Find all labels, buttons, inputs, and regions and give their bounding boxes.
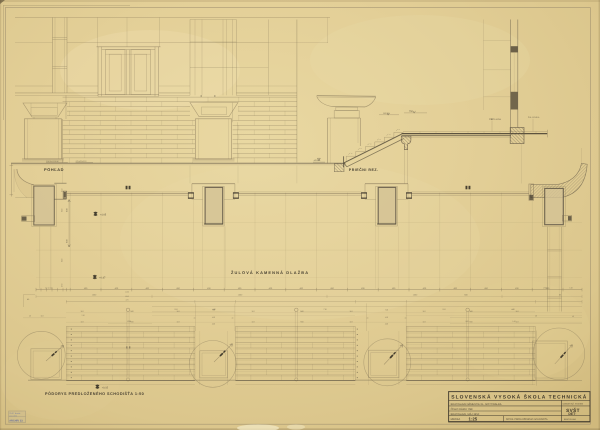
svg-text:960: 960 [469, 310, 472, 313]
svg-text:110: 110 [349, 310, 352, 313]
svg-text:110: 110 [176, 310, 179, 313]
svg-text:1045: 1045 [125, 295, 129, 298]
svg-text:ODBOR INŽ. STAVIEB: ODBOR INŽ. STAVIEB [563, 403, 584, 406]
svg-text:40: 40 [193, 317, 195, 320]
svg-text:+0.47: +0.47 [99, 277, 106, 280]
svg-text:118: 118 [80, 320, 83, 323]
svg-text:60 10 110: 60 10 110 [45, 287, 52, 290]
svg-text:BRATISLAVA, MÁJ 1950: BRATISLAVA, MÁJ 1950 [451, 412, 480, 416]
svg-text:960: 960 [130, 310, 133, 313]
svg-text:BRATISLAVA NÁMESTIE KL. GOTTWA: BRATISLAVA NÁMESTIE KL. GOTTWALDA [451, 402, 502, 406]
svg-text:440: 440 [385, 322, 388, 325]
svg-text:ŽUL.DOSKA: ŽUL.DOSKA [528, 116, 540, 119]
svg-text:110: 110 [40, 315, 43, 318]
svg-text:118: 118 [515, 320, 518, 323]
svg-text:470: 470 [126, 299, 129, 302]
svg-text:440: 440 [212, 322, 215, 325]
svg-text:PÔDORYS PREDLOŽENÉHO SCHODIŠ: PÔDORYS PREDLOŽENÉHO SCHODIŠŤA 1:50 [45, 391, 144, 396]
svg-text:40: 40 [231, 317, 233, 320]
svg-text:MIERKA: MIERKA [451, 418, 461, 421]
svg-text:+0.15: +0.15 [102, 386, 109, 389]
svg-text:140: 140 [569, 287, 572, 290]
svg-text:710: 710 [385, 309, 388, 312]
svg-text:560: 560 [465, 320, 468, 323]
svg-text:118: 118 [251, 320, 254, 323]
svg-text:118: 118 [176, 320, 179, 323]
svg-text:960: 960 [469, 320, 472, 323]
svg-text:110: 110 [80, 310, 83, 313]
svg-text:DET·: DET· [568, 412, 576, 416]
svg-text:±0.000: ±0.000 [314, 159, 321, 162]
svg-text:40: 40 [535, 315, 537, 318]
svg-text:40: 40 [367, 317, 369, 320]
svg-text:ARCHÍV 23: ARCHÍV 23 [9, 418, 23, 422]
svg-text:210: 210 [543, 287, 546, 290]
svg-text:1100: 1100 [125, 291, 129, 294]
svg-text:ČÍSLO RÁMU 7/98: ČÍSLO RÁMU 7/98 [451, 407, 473, 411]
svg-text:ŽULOVÁ KAMENNÁ DLAŽBA: ŽULOVÁ KAMENNÁ DLAŽBA [231, 270, 309, 275]
svg-text:118: 118 [349, 320, 352, 323]
svg-text:118: 118 [422, 320, 425, 323]
svg-text:110: 110 [251, 310, 254, 313]
svg-text:pod.1950: pod.1950 [9, 414, 17, 417]
svg-text:960: 960 [300, 320, 303, 323]
svg-text:710: 710 [212, 309, 215, 312]
svg-text:110: 110 [515, 310, 518, 313]
svg-text:740: 740 [81, 314, 84, 317]
svg-text:POHĽAD: POHĽAD [44, 167, 64, 172]
svg-text:960: 960 [300, 310, 303, 313]
svg-text:40: 40 [405, 317, 407, 320]
svg-text:110: 110 [422, 310, 425, 313]
svg-text:65: 65 [559, 293, 561, 296]
svg-text:410: 410 [212, 316, 215, 319]
svg-text:410: 410 [385, 316, 388, 319]
svg-text:PRIEČNI REZ.: PRIEČNI REZ. [349, 167, 379, 172]
svg-text:960: 960 [130, 320, 133, 323]
svg-text:1:25: 1:25 [469, 416, 478, 421]
svg-text:BRATISLAVA: BRATISLAVA [564, 418, 577, 421]
svg-text:45: 45 [29, 315, 31, 318]
svg-text:DETAIL PREDLOŽENÉHO SCHODIŠŤA: DETAIL PREDLOŽENÉHO SCHODIŠŤA [506, 418, 548, 421]
svg-text:SLOVENSKÁ VYSOKÁ ŠKOLA TECHNIC: SLOVENSKÁ VYSOKÁ ŠKOLA TECHNICKÁ [451, 393, 587, 400]
